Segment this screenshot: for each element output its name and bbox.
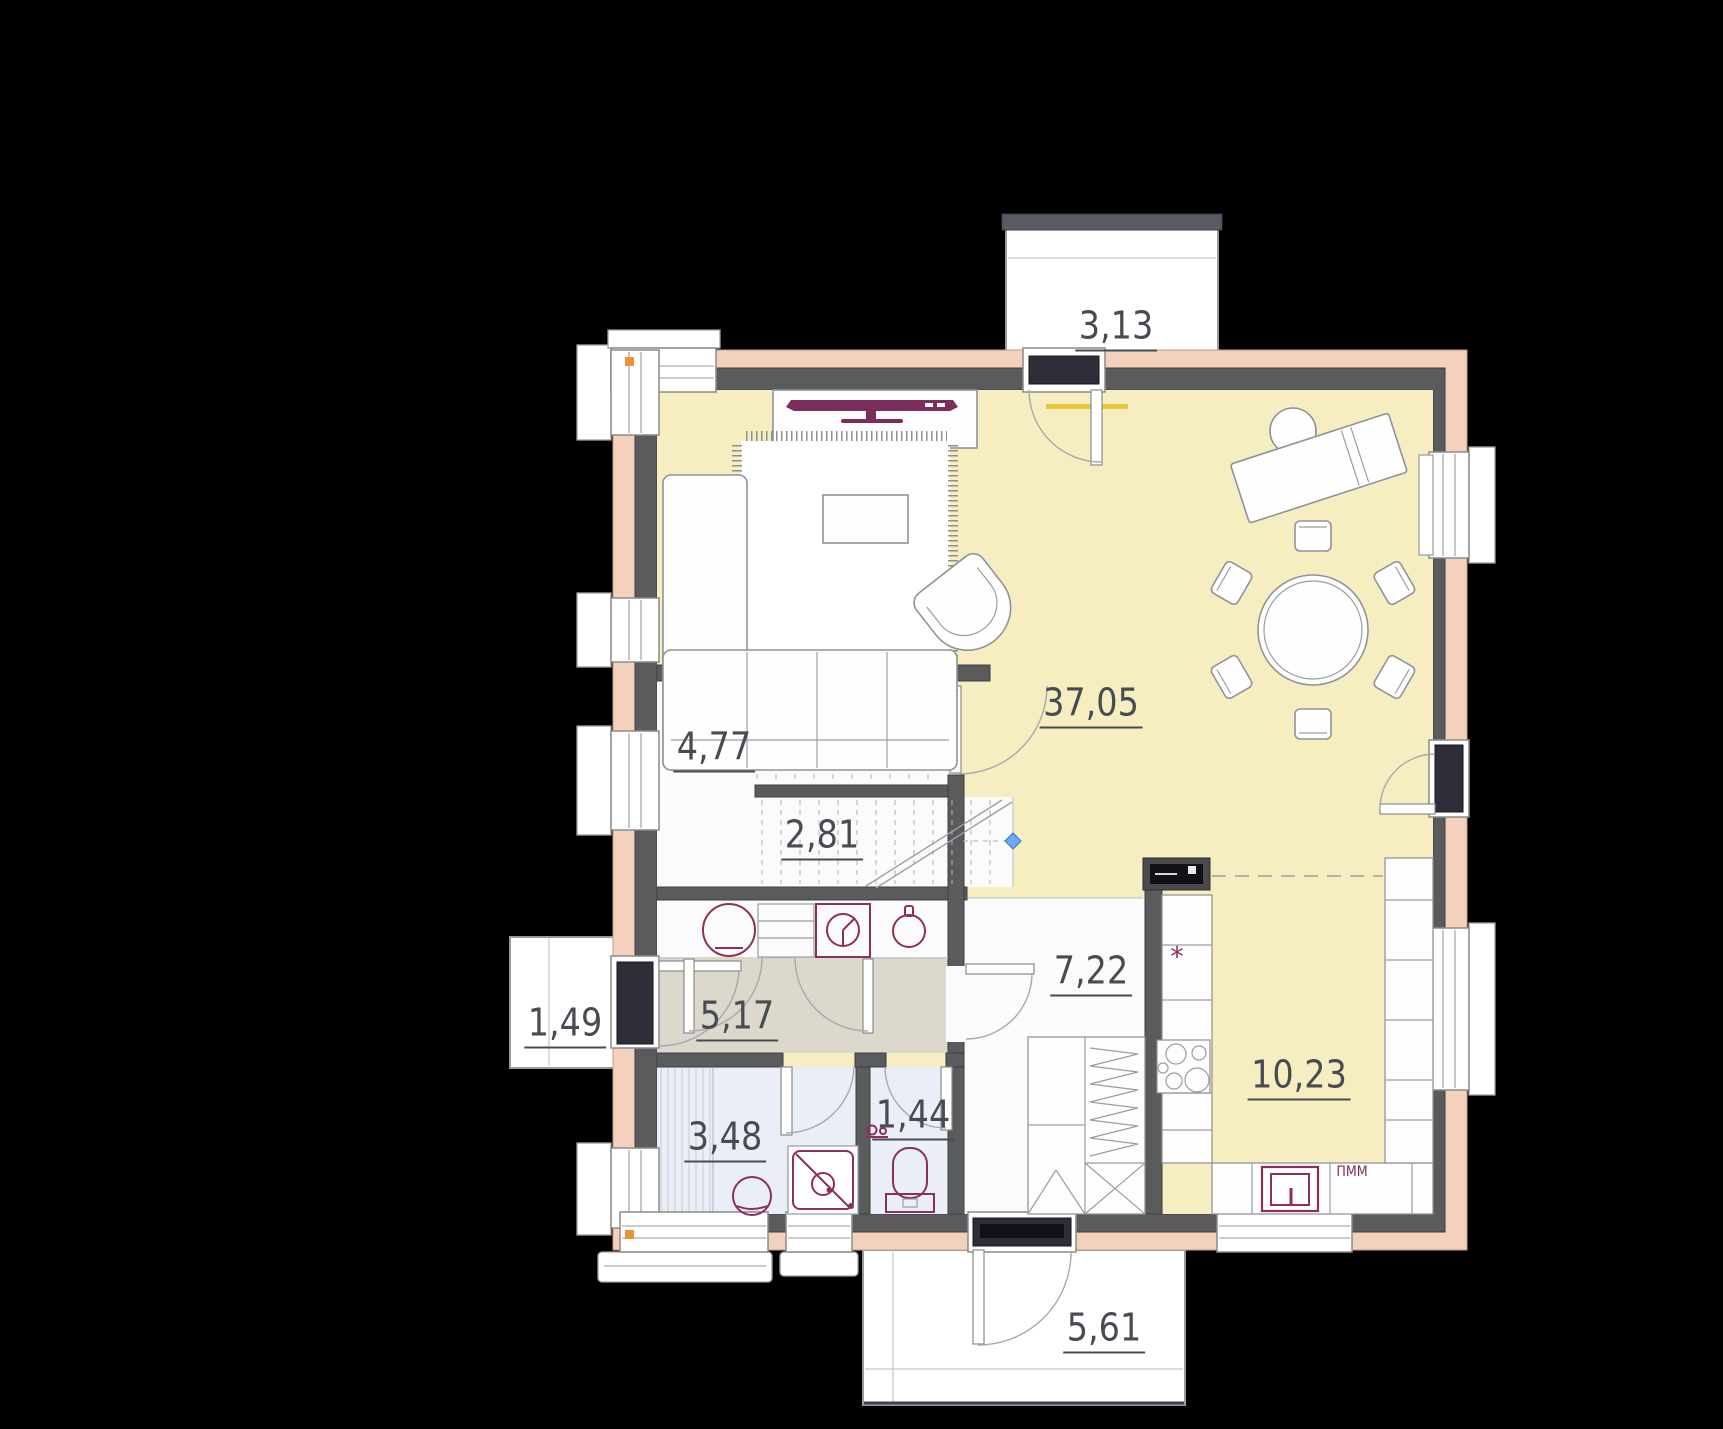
room-label-bathroom: 3,48 [684, 1118, 765, 1163]
room-label-kitchen: 10,23 [1248, 1056, 1351, 1101]
room-label-stairwell: 2,81 [781, 816, 862, 861]
wardrobe [1028, 1037, 1145, 1214]
vent-shaft [1143, 858, 1210, 890]
room-label-balcony: 3,13 [1075, 307, 1156, 352]
dishwasher-label: ПММ [1336, 1165, 1367, 1179]
floor-plan-canvas: 37,05 4,77 2,81 5,17 3,48 1,44 7,22 10,2… [0, 0, 1723, 1429]
room-label-corridor: 7,22 [1050, 952, 1131, 997]
corner-marker [625, 357, 634, 366]
kitchen-mark: * [1170, 944, 1184, 971]
dining-chair [1295, 521, 1331, 551]
corner-marker [625, 1230, 634, 1239]
room-label-hallway: 5,17 [696, 997, 777, 1042]
room-label-wc: 1,44 [872, 1096, 953, 1141]
wc-floor [870, 1067, 948, 1214]
dining-table [1258, 575, 1368, 685]
dining-chair [1295, 709, 1331, 739]
coffee-table [823, 495, 908, 543]
room-label-terrace: 5,61 [1063, 1309, 1144, 1354]
room-label-living-dining: 37,05 [1040, 684, 1143, 729]
room-label-porch: 1,49 [524, 1004, 605, 1049]
room-label-stair-storage: 4,77 [673, 728, 754, 773]
floor-plan-drawing [0, 0, 1723, 1429]
